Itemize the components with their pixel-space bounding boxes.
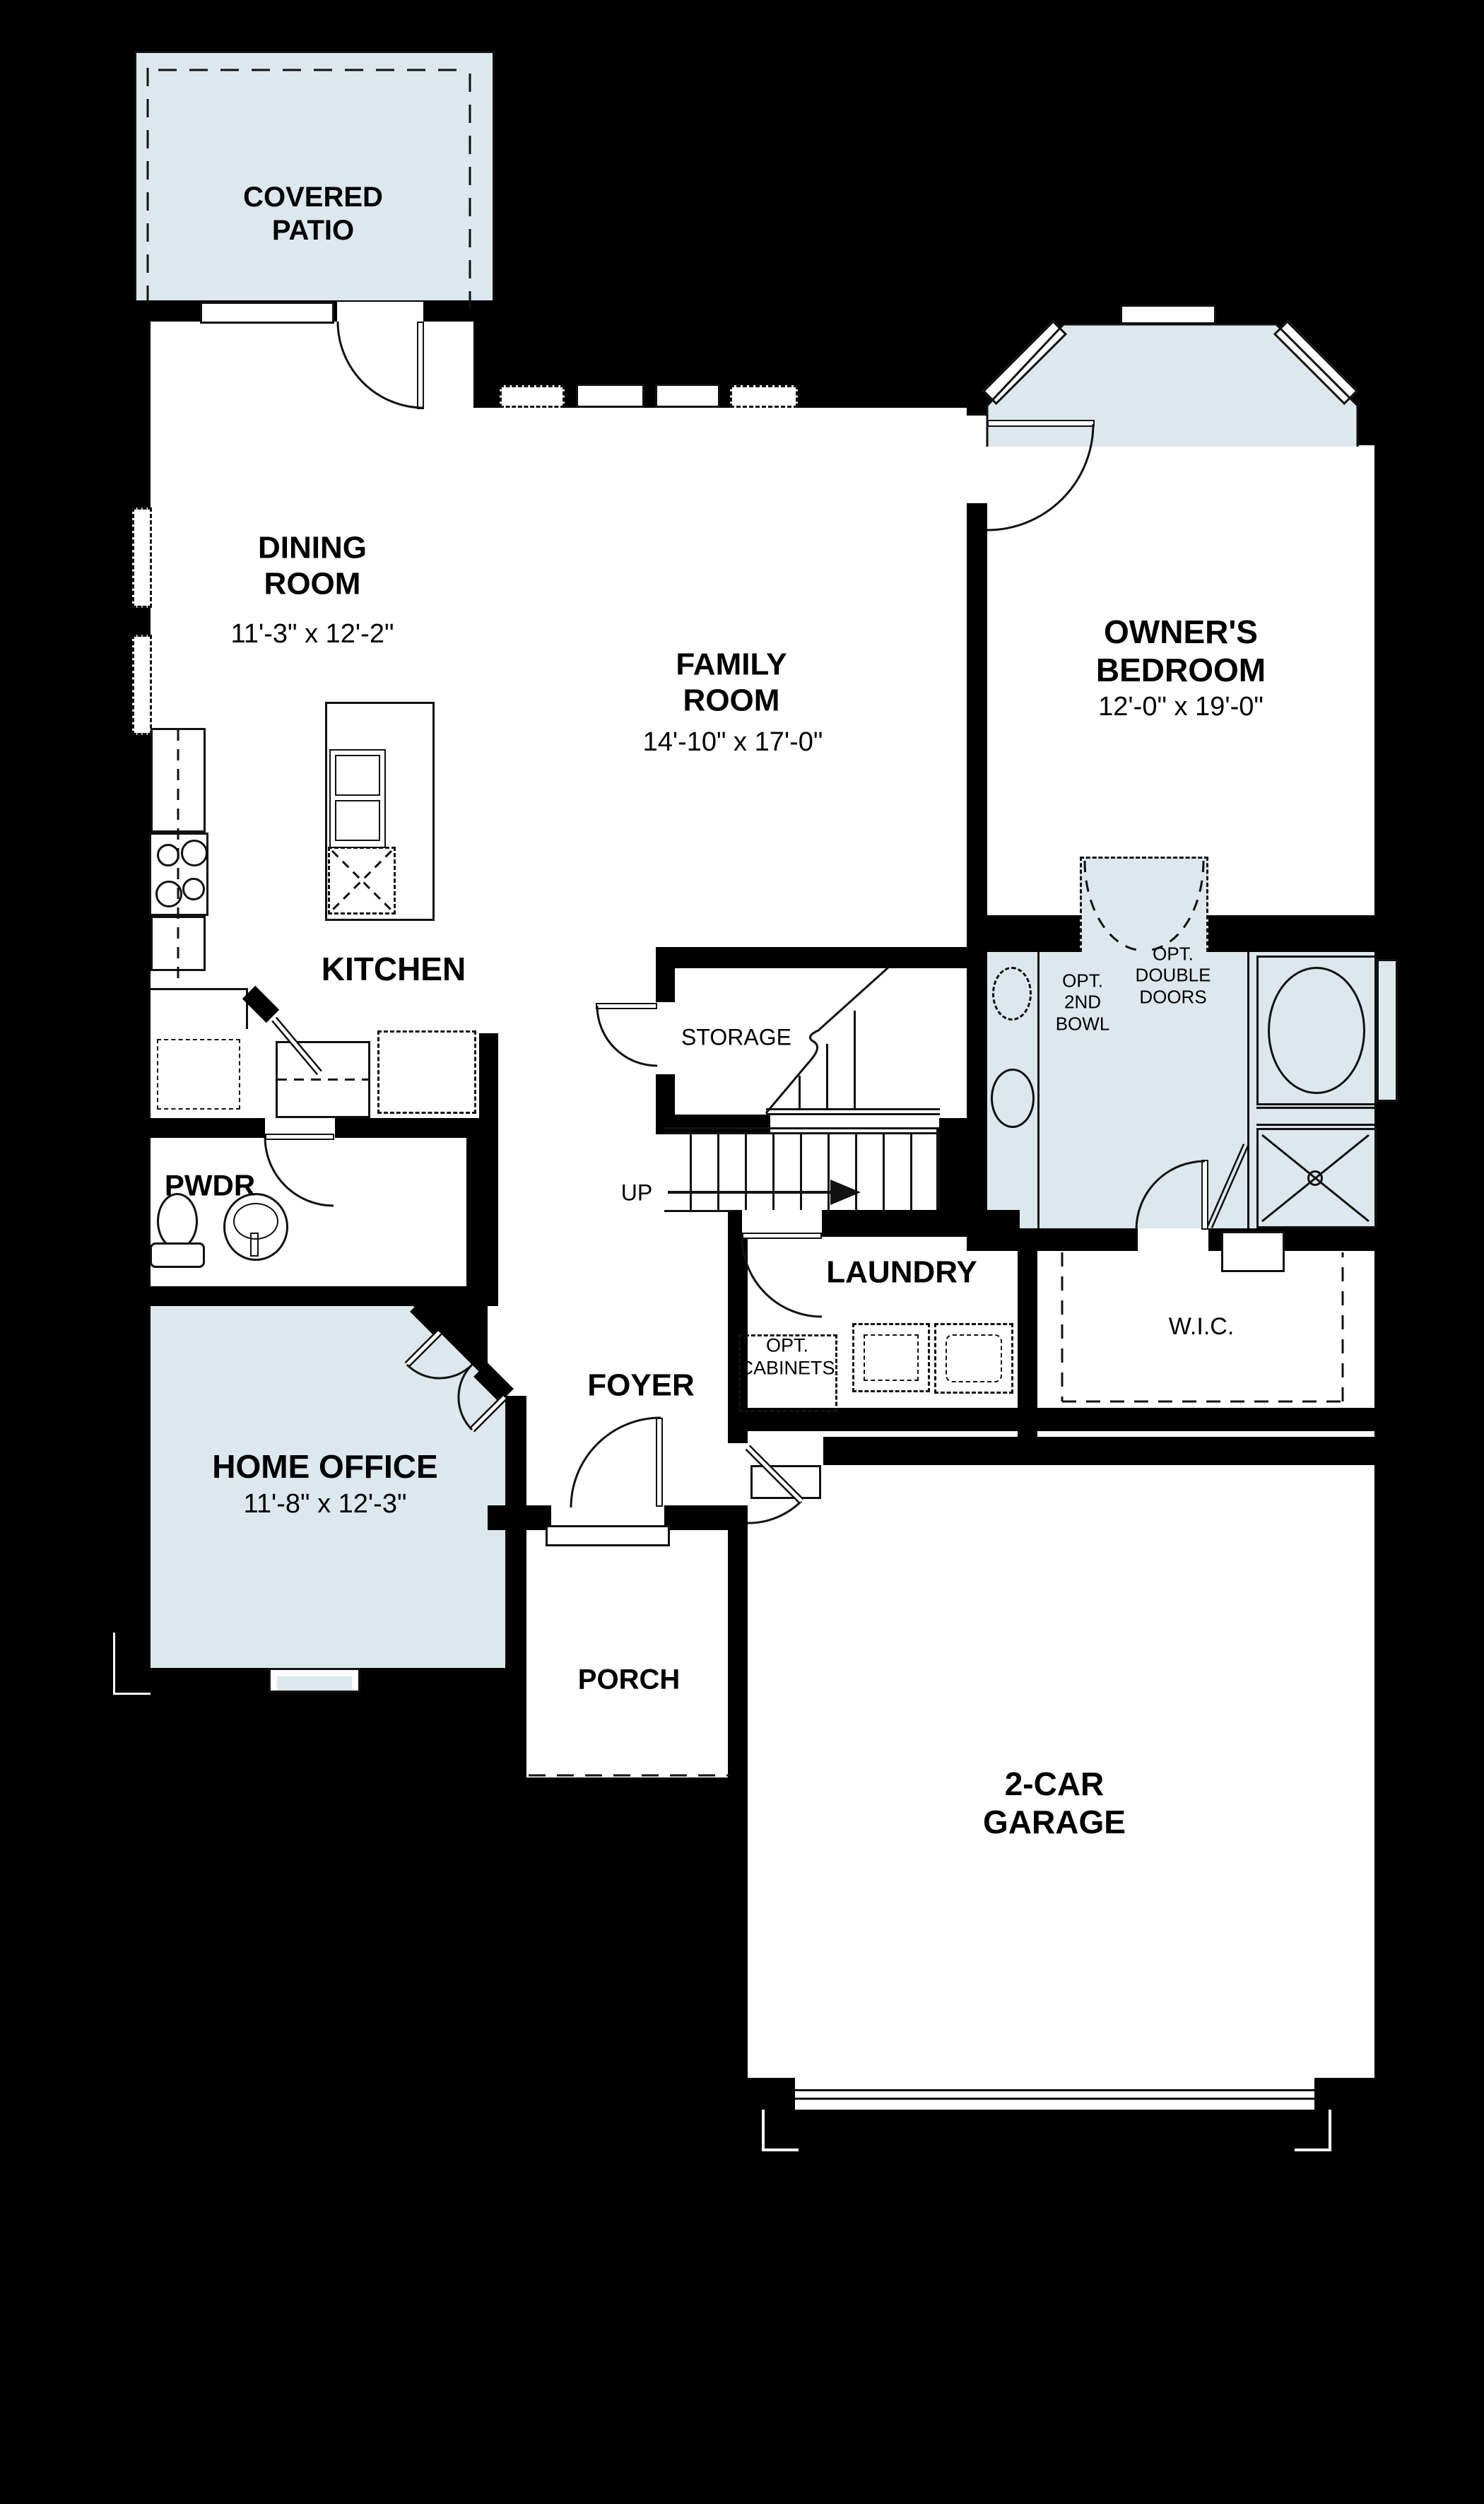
room-label-pwdr: PWDR bbox=[165, 1168, 255, 1202]
room-label-foyer: FOYER bbox=[587, 1367, 695, 1403]
wall-stub bbox=[481, 1370, 507, 1396]
bath-opt-2nd-bowl-label: OPT. 2ND BOWL bbox=[1056, 970, 1110, 1034]
door-swing-arc bbox=[571, 1418, 661, 1507]
room-label-garage: 2-CAR GARAGE bbox=[983, 1765, 1126, 1842]
wall-stub bbox=[417, 1305, 442, 1329]
up-arrow-head bbox=[830, 1180, 861, 1205]
floor-plan: COVERED PATIO DINING ROOM 11'-3" x 12'-2… bbox=[0, 0, 1484, 2504]
room-dims-home-office: 11'-8" x 12'-3" bbox=[244, 1488, 407, 1520]
stairs-up-label: UP bbox=[621, 1180, 652, 1206]
room-label-kitchen: KITCHEN bbox=[322, 951, 466, 989]
opt-door-swing-arc bbox=[1085, 861, 1144, 951]
room-label-storage: STORAGE bbox=[681, 1024, 791, 1050]
room-dims-dining: 11'-3" x 12'-2" bbox=[231, 618, 394, 649]
door-swing-arc bbox=[597, 1006, 657, 1066]
wall-stub bbox=[249, 992, 273, 1016]
room-label-family: FAMILY ROOM bbox=[676, 647, 787, 719]
door-swing-arc bbox=[748, 1501, 801, 1523]
room-label-laundry: LAUNDRY bbox=[826, 1254, 977, 1290]
room-label-porch: PORCH bbox=[578, 1664, 680, 1697]
door-swing-arc bbox=[338, 322, 424, 408]
door-swing-arc bbox=[459, 1365, 472, 1430]
door-swing-arc bbox=[987, 424, 1093, 530]
opt-door-swing-arc bbox=[1144, 861, 1203, 951]
room-label-owners-bedroom: OWNER'S BEDROOM bbox=[1096, 613, 1266, 690]
room-label-home-office: HOME OFFICE bbox=[212, 1448, 437, 1486]
door-leaf bbox=[1210, 1145, 1246, 1227]
room-dims-owners-bedroom: 12'-0" x 19'-0" bbox=[1098, 691, 1264, 722]
door-leaf bbox=[274, 1019, 319, 1073]
door-swing-arc bbox=[407, 1365, 472, 1378]
laundry-opt-cabinets-label: OPT. CABINETS bbox=[739, 1334, 835, 1379]
bay-window-outline bbox=[987, 324, 1358, 447]
door-swing-arc bbox=[742, 1237, 822, 1317]
shower-x bbox=[1262, 1135, 1369, 1221]
plan-linework bbox=[0, 0, 1484, 2504]
bath-opt-double-doors-label: OPT. DOUBLE DOORS bbox=[1136, 943, 1211, 1007]
opt-dishwasher-x bbox=[332, 851, 391, 910]
door-swing-arc bbox=[265, 1137, 334, 1206]
room-label-covered-patio: COVERED PATIO bbox=[243, 181, 383, 247]
door-leaf bbox=[748, 1447, 801, 1501]
room-label-dining: DINING ROOM bbox=[258, 530, 367, 603]
door-swing-arc bbox=[1136, 1161, 1205, 1230]
room-dims-family: 14'-10" x 17'-0" bbox=[643, 727, 823, 758]
room-label-wic: W.I.C. bbox=[1169, 1313, 1235, 1341]
